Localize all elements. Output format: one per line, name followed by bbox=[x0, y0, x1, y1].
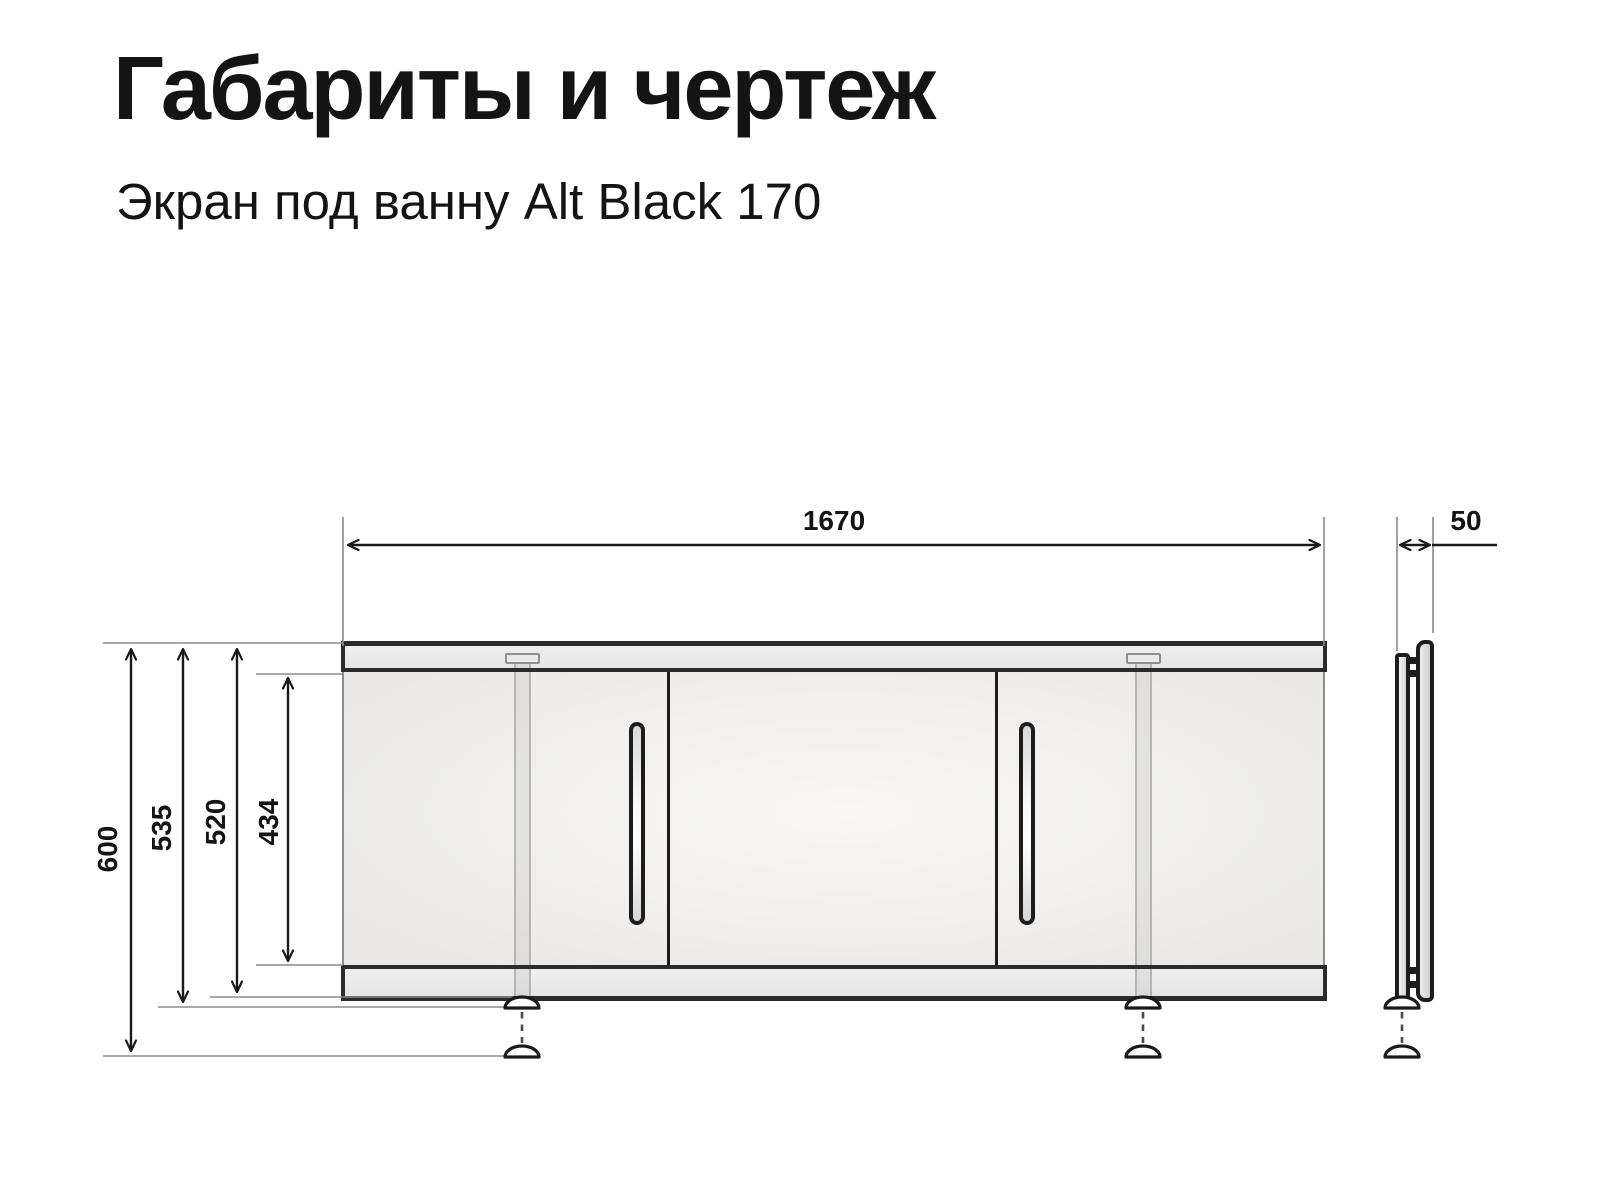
door-divider-left bbox=[667, 672, 670, 966]
panel-right-side bbox=[1323, 672, 1325, 965]
side-panel-profile bbox=[1395, 653, 1410, 1000]
side-foot-extended bbox=[1385, 1046, 1419, 1057]
side-frame-profile bbox=[1416, 640, 1434, 1002]
right-foot-extended bbox=[1126, 1046, 1160, 1057]
dimension-label-height-door: 434 bbox=[253, 799, 285, 846]
panel-left-edge bbox=[341, 641, 345, 672]
panel-left-edge bbox=[341, 965, 345, 1001]
dimension-label-height-total: 600 bbox=[92, 826, 124, 873]
screen-panel-body bbox=[343, 643, 1325, 1001]
page-title: Габариты и чертеж bbox=[113, 44, 934, 134]
panel-left-side bbox=[342, 672, 344, 965]
panel-right-edge bbox=[1323, 641, 1327, 672]
side-connector bbox=[1407, 981, 1418, 988]
left-leg bbox=[514, 655, 531, 997]
top-rail-lower-edge bbox=[341, 668, 1327, 672]
dimension-label-depth: 50 bbox=[1450, 505, 1481, 537]
side-connector bbox=[1407, 670, 1418, 677]
bottom-rail-upper-edge bbox=[341, 965, 1327, 969]
panel-right-edge bbox=[1323, 965, 1327, 1001]
left-handle-slot bbox=[629, 722, 645, 925]
drawing-page: Габариты и чертеж Экран под ванну Alt Bl… bbox=[0, 0, 1600, 1200]
right-handle-slot bbox=[1019, 722, 1035, 925]
panel-top-edge bbox=[341, 641, 1327, 646]
foot-travel-line bbox=[522, 1012, 1402, 1043]
panel-bottom-edge bbox=[341, 996, 1327, 1001]
left-foot-extended bbox=[505, 1046, 539, 1057]
right-leg-bracket bbox=[1126, 653, 1161, 664]
side-connector bbox=[1407, 967, 1418, 974]
page-subtitle: Экран под ванну Alt Black 170 bbox=[116, 176, 821, 227]
dimension-label-height-screen: 520 bbox=[200, 799, 232, 846]
dimension-label-width: 1670 bbox=[803, 505, 865, 537]
dimension-label-height-with-foot: 535 bbox=[146, 805, 178, 852]
door-divider-right bbox=[995, 672, 998, 966]
side-connector bbox=[1407, 657, 1418, 664]
left-leg-bracket bbox=[505, 653, 540, 664]
right-leg bbox=[1135, 655, 1152, 997]
